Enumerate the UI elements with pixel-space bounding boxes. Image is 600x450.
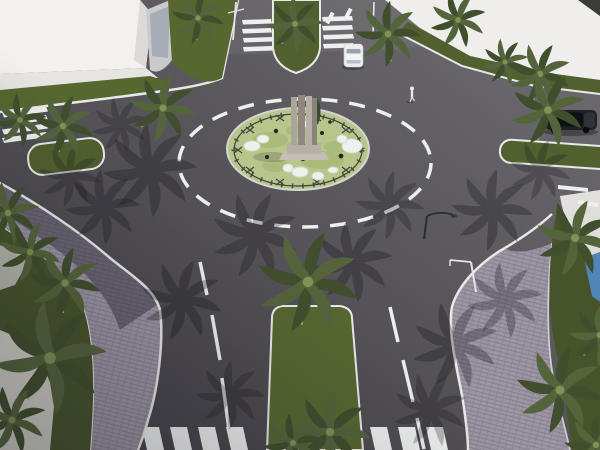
roundabout-render [0,0,600,450]
film-grain [0,0,600,450]
render-canvas [0,0,600,450]
